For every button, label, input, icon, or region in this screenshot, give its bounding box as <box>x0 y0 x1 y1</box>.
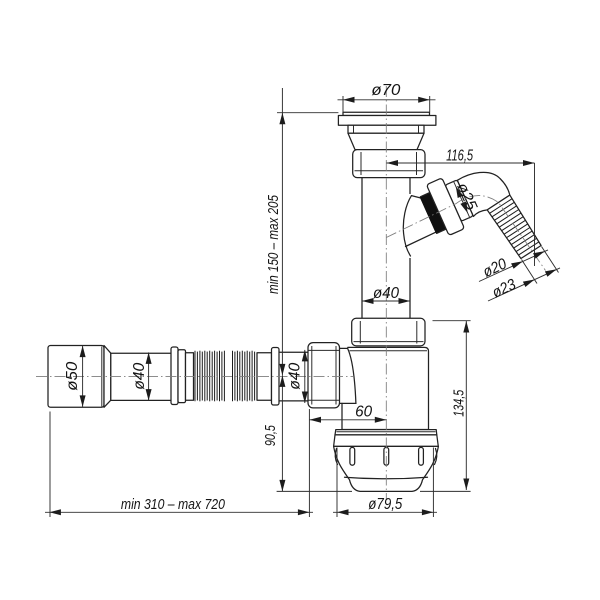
svg-text:90,5: 90,5 <box>262 425 279 446</box>
svg-text:ø50: ø50 <box>64 362 81 391</box>
svg-text:60: 60 <box>355 404 372 421</box>
svg-text:min 150 – max 205: min 150 – max 205 <box>265 194 282 294</box>
svg-text:134,5: 134,5 <box>450 389 467 416</box>
svg-text:min 310 – max 720: min 310 – max 720 <box>121 496 226 513</box>
svg-text:ø70: ø70 <box>371 82 400 99</box>
svg-text:ø40: ø40 <box>131 363 148 390</box>
svg-text:116,5: 116,5 <box>446 148 473 165</box>
svg-text:ø40: ø40 <box>286 363 303 390</box>
svg-text:ø79,5: ø79,5 <box>368 496 402 513</box>
svg-text:ø40: ø40 <box>373 285 399 302</box>
